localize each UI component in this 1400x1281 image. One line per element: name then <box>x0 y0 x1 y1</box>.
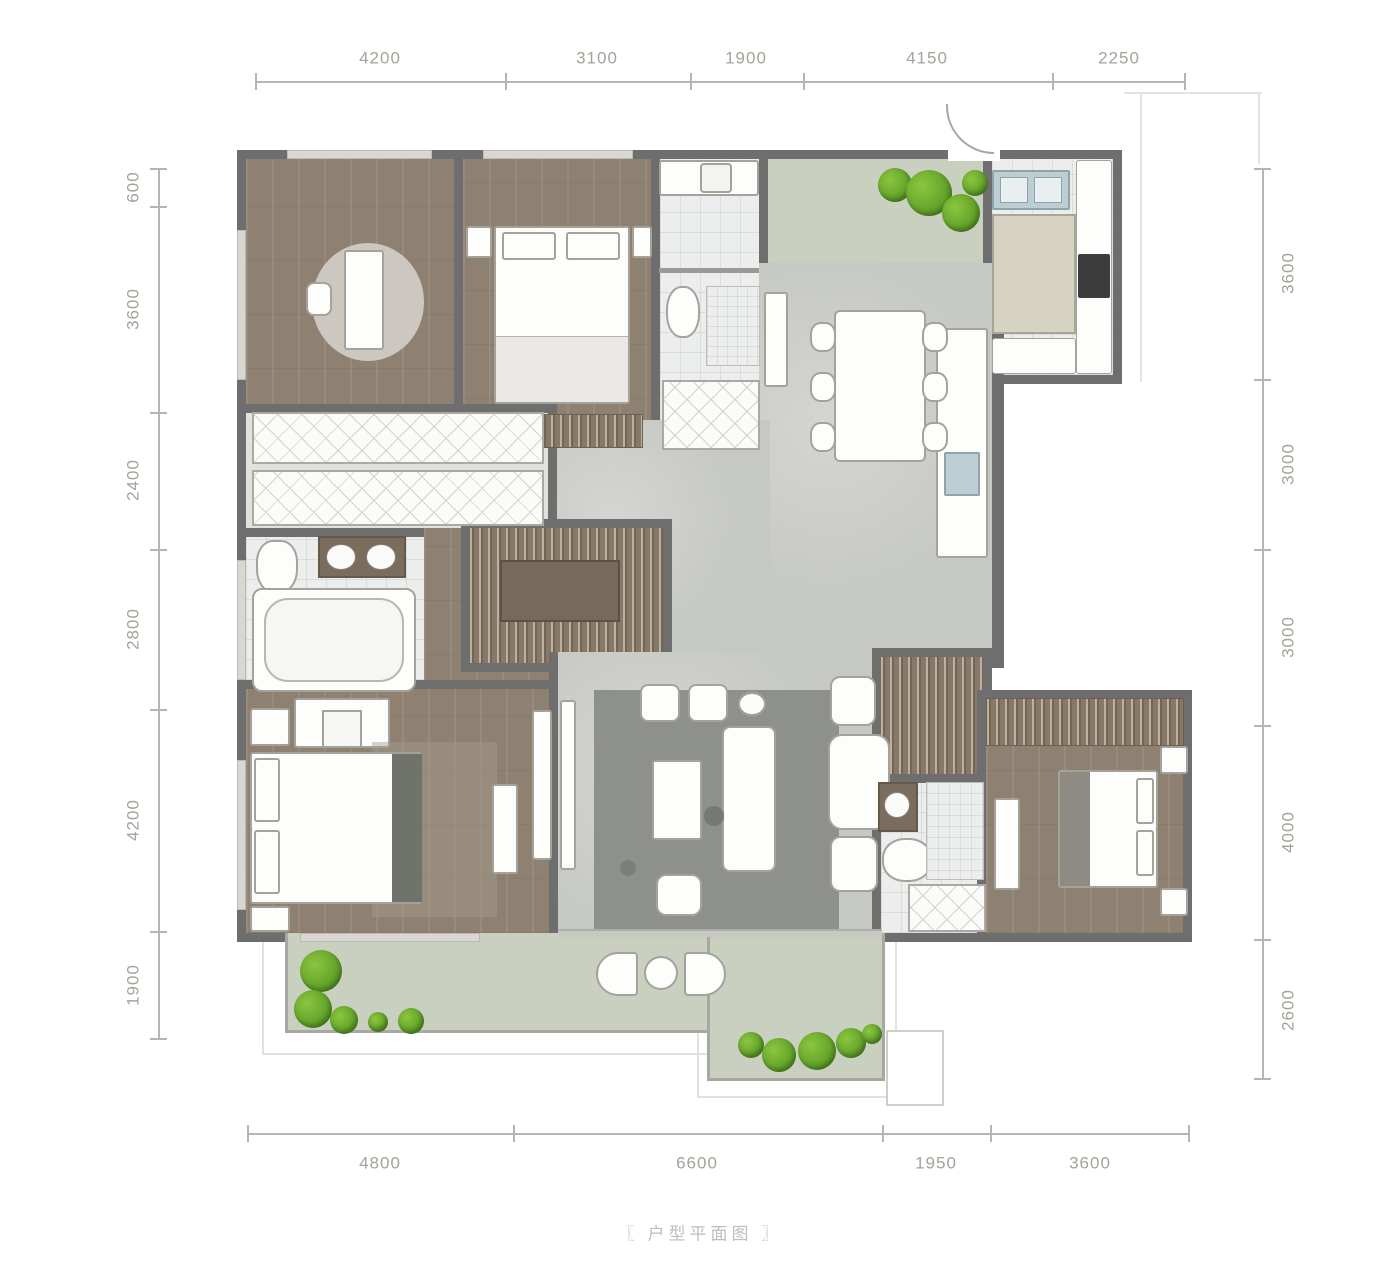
dim-label: 4000 <box>1280 811 1297 853</box>
balcony-chair <box>596 952 638 996</box>
plant <box>942 194 980 232</box>
entry-door-arc <box>946 104 994 154</box>
rug-pattern <box>620 860 636 876</box>
dining-table <box>834 310 926 462</box>
plant <box>862 1024 882 1044</box>
dim-tick <box>150 412 167 414</box>
dim-label: 1950 <box>915 1155 957 1172</box>
dim-line-top <box>255 81 1186 83</box>
bed-throw <box>392 754 422 902</box>
window <box>287 150 432 159</box>
balcony-chair <box>684 952 726 996</box>
dim-label: 4150 <box>906 50 948 67</box>
washer <box>700 163 732 193</box>
wardrobe-row <box>252 412 544 464</box>
dim-tick <box>882 1125 884 1142</box>
wet-bar-sink <box>944 452 980 496</box>
dim-label: 3600 <box>1069 1155 1111 1172</box>
dim-tick <box>990 1125 992 1142</box>
lounge-chair <box>830 676 876 726</box>
dining-chair <box>810 372 836 402</box>
sink-basin <box>1034 177 1062 203</box>
plant <box>738 1032 764 1058</box>
dim-tick <box>255 73 257 90</box>
construction-line <box>1140 92 1142 382</box>
dim-tick <box>150 206 167 208</box>
shower-tray <box>662 380 760 450</box>
dim-tick <box>1254 379 1271 381</box>
sink-basin <box>884 792 910 818</box>
toilet <box>256 540 298 594</box>
dresser-box <box>322 710 362 748</box>
plant <box>330 1006 358 1034</box>
dim-label: 2800 <box>125 608 142 650</box>
wall-segment <box>659 268 759 273</box>
wardrobe-row <box>252 470 544 526</box>
construction-line <box>1124 92 1262 94</box>
tv-console <box>994 798 1020 890</box>
dim-line-right <box>1262 168 1264 1080</box>
dim-tick <box>247 1125 249 1142</box>
plan-caption: 〖 户型平面图 〗 <box>618 1220 782 1245</box>
study-table <box>344 250 384 350</box>
nightstand <box>1160 746 1188 774</box>
dim-tick <box>150 1038 167 1040</box>
kitchen-island <box>992 214 1076 334</box>
dim-line-left <box>158 168 160 1040</box>
window <box>237 230 246 380</box>
shower <box>926 782 984 880</box>
plant <box>300 950 342 992</box>
dim-line-bottom <box>247 1133 1190 1135</box>
dim-label: 3600 <box>1280 252 1297 294</box>
sliding-door <box>558 929 882 937</box>
dining-chair <box>810 322 836 352</box>
dim-tick <box>505 73 507 90</box>
dim-tick <box>1254 1078 1271 1080</box>
dining-chair <box>810 422 836 452</box>
sink-basin <box>366 544 396 570</box>
blanket <box>1060 772 1090 886</box>
dim-tick <box>1254 549 1271 551</box>
dim-label: 6600 <box>676 1155 718 1172</box>
dim-label: 4200 <box>125 799 142 841</box>
balcony-right <box>707 933 885 1081</box>
pillow <box>254 830 280 894</box>
dim-label: 3600 <box>125 288 142 330</box>
sofa <box>722 726 776 872</box>
side-table <box>738 692 766 716</box>
dining-chair <box>922 322 948 352</box>
window <box>237 560 246 680</box>
pillow <box>254 758 280 822</box>
toilet <box>666 286 700 338</box>
shower-tray <box>908 884 986 932</box>
tv-cabinet <box>532 710 552 860</box>
dining-chair <box>922 372 948 402</box>
pillow <box>566 232 620 260</box>
toilet <box>882 838 932 882</box>
tv-console <box>560 700 576 870</box>
dim-label: 600 <box>125 171 142 202</box>
kitchen-counter <box>992 338 1076 374</box>
dim-label: 1900 <box>125 964 142 1006</box>
dim-label: 2600 <box>1280 989 1297 1031</box>
window <box>237 760 246 910</box>
dim-tick <box>1254 725 1271 727</box>
cloak-cabinet <box>872 648 992 784</box>
shower <box>706 286 760 366</box>
blanket <box>496 336 628 402</box>
dim-tick <box>150 549 167 551</box>
nightstand <box>1160 888 1188 916</box>
lounge-chair <box>830 836 878 892</box>
dim-label: 1900 <box>725 50 767 67</box>
dim-tick <box>150 931 167 933</box>
armchair <box>688 684 728 722</box>
floor-plan: 4200 3100 1900 4150 2250 600 3600 2400 2… <box>0 0 1400 1281</box>
balcony-table <box>644 956 678 990</box>
dim-label: 3100 <box>576 50 618 67</box>
study-chair <box>306 282 332 316</box>
dim-tick <box>1188 1125 1190 1142</box>
dim-label: 2250 <box>1098 50 1140 67</box>
window <box>300 933 480 942</box>
stove <box>1078 254 1110 298</box>
nightstand <box>250 708 290 746</box>
ottoman <box>656 874 702 916</box>
sink-basin <box>326 544 356 570</box>
nightstand <box>632 226 652 258</box>
dim-tick <box>513 1125 515 1142</box>
nightstand <box>466 226 492 258</box>
sink-basin <box>1000 177 1028 203</box>
cabinet <box>764 292 788 387</box>
dim-label: 2400 <box>125 459 142 501</box>
dining-chair <box>922 422 948 452</box>
entry-path <box>886 1030 944 1106</box>
pillow <box>502 232 556 260</box>
dim-tick <box>803 73 805 90</box>
dim-tick <box>1254 168 1271 170</box>
dim-label: 3000 <box>1280 443 1297 485</box>
plant <box>398 1008 424 1034</box>
dim-tick <box>150 168 167 170</box>
master-wardrobe <box>986 698 1184 746</box>
dim-label: 4800 <box>359 1155 401 1172</box>
plant <box>762 1038 796 1072</box>
construction-line <box>1258 92 1260 164</box>
desk <box>492 784 518 874</box>
pillow <box>1136 778 1154 824</box>
armchair <box>640 684 680 722</box>
dim-tick <box>1254 939 1271 941</box>
window <box>483 150 633 159</box>
pillow <box>1136 830 1154 876</box>
dim-label: 4200 <box>359 50 401 67</box>
plant <box>962 170 988 196</box>
dim-tick <box>150 709 167 711</box>
dim-label: 3000 <box>1280 616 1297 658</box>
plant <box>368 1012 388 1032</box>
dim-tick <box>1184 73 1186 90</box>
bathtub-inner <box>264 598 404 682</box>
nightstand <box>250 906 290 932</box>
dim-tick <box>690 73 692 90</box>
plant <box>294 990 332 1028</box>
closet-island <box>500 560 620 622</box>
dim-tick <box>1052 73 1054 90</box>
coffee-table <box>652 760 702 840</box>
plant <box>798 1032 836 1070</box>
rug-pattern <box>704 806 724 826</box>
